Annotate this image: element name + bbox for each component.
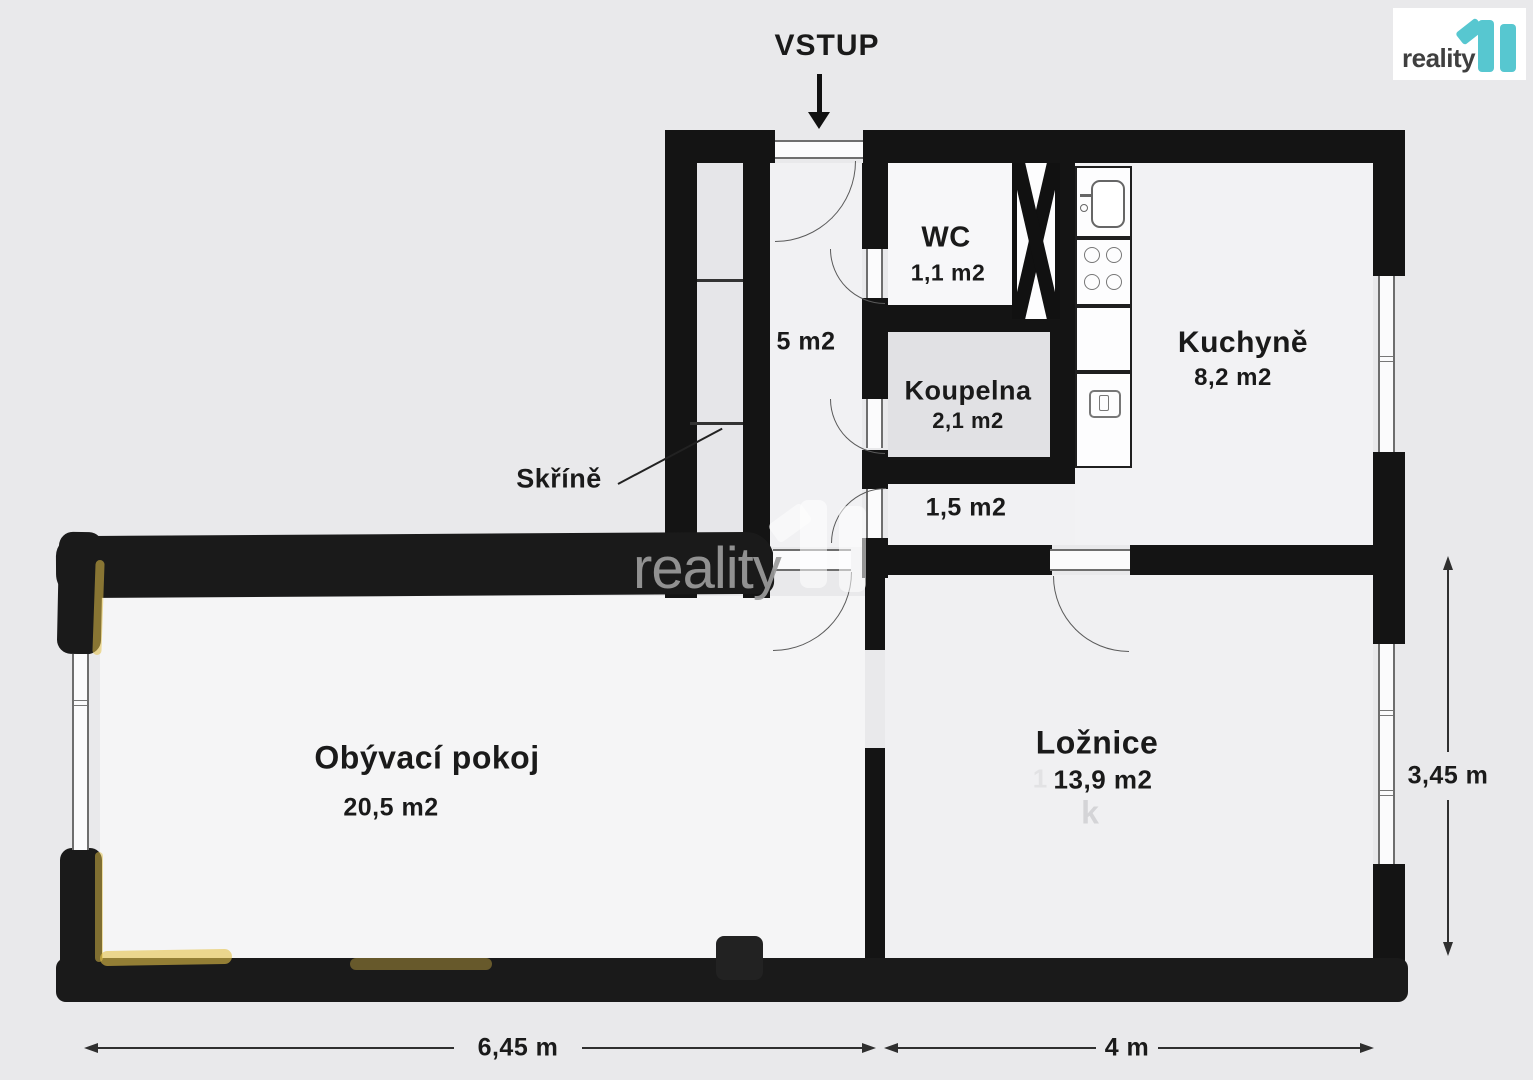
closet-divider [697,279,743,282]
right-wall-seg [1373,130,1405,276]
burner-icon [1106,247,1122,263]
kitchen-area: 8,2 m2 [1194,364,1272,392]
tap-icon [1080,204,1088,212]
bedroom-area: 13,9 m2 [1054,765,1153,796]
bathroom-bottom-wall [862,457,1075,484]
dim-line [1447,800,1449,944]
highlight-mark [350,958,492,970]
logo-brand-text: reality [1402,45,1475,71]
living-bedroom-wall-top [865,545,885,650]
logo-11-bar [1478,20,1494,72]
logo-11-bar [1500,24,1516,72]
shaft [1012,163,1060,319]
right-wall-seg [1373,864,1405,966]
appliance-icon [1099,395,1109,411]
dim-arrow-down [1443,942,1453,956]
dim-line [896,1047,1096,1049]
dim-arrow-right [1360,1043,1374,1053]
bedroom-top-wall [885,545,1052,575]
window-mullion [74,700,87,706]
hallway-area: 5 m2 [777,328,836,357]
living-room-name: Obývací pokoj [314,740,539,777]
dim-line [1158,1047,1362,1049]
bathroom-name: Koupelna [904,376,1031,407]
kitchen-bottom-wall [1130,545,1405,575]
living-room-floor [100,596,865,962]
watermark-text: reality [633,540,781,598]
closets-label: Skříně [516,464,602,495]
highlight-mark [95,852,103,962]
wc-area: 1,1 m2 [911,260,986,287]
watermark-ghost-k: k [1081,795,1099,832]
closet-divider [690,422,743,425]
dim-bottom-left: 6,45 m [478,1034,559,1063]
burner-icon [1084,274,1100,290]
highlight-mark [100,949,232,966]
watermark-11-bar [800,500,827,588]
wc-name: WC [921,222,970,255]
entrance-label: VSTUP [774,29,879,63]
burner-icon [1084,247,1100,263]
living-room-area: 20,5 m2 [343,794,438,823]
tap-icon [1080,194,1091,197]
entrance-arrow-head [808,112,830,129]
watermark-11-bar [839,506,866,592]
dim-line [96,1047,454,1049]
corridor-area: 1,5 m2 [926,494,1007,523]
dim-right: 3,45 m [1408,762,1489,791]
shaft-kitchen-wall [1060,163,1075,484]
kitchen-counter-unit [1075,306,1132,372]
living-room-window [72,654,89,850]
logo-box: reality [1393,8,1526,80]
watermark-ghost-one: 1 [1033,764,1047,795]
closet-interior [697,163,743,545]
bathroom-area: 2,1 m2 [932,408,1004,434]
kitchen-sink-unit [1075,166,1132,238]
dim-arrow-right [862,1043,876,1053]
entrance-threshold [775,140,863,159]
upper-left-wall [665,130,697,598]
living-bedroom-wall-bottom [865,748,885,964]
kitchen-window [1378,276,1395,452]
window-mullion [1380,356,1393,362]
bedroom-door-threshold [1050,549,1130,571]
bedroom-window [1378,644,1395,864]
burner-icon [1106,274,1122,290]
sink-icon [1091,180,1125,228]
kitchen-name: Kuchyně [1178,326,1308,360]
window-mullion [1380,790,1393,796]
dim-line [582,1047,862,1049]
dim-line [1447,568,1449,752]
window-mullion [1380,710,1393,716]
right-wall-seg [1373,452,1405,644]
entrance-arrow-line [817,74,822,116]
kitchen-stove-unit [1075,238,1132,306]
hall-right-wall-seg [862,163,888,249]
kitchen-appliance-unit [1075,372,1132,468]
bedroom-name: Ložnice [1036,725,1159,762]
top-wall-right [863,130,1405,163]
column-stub [716,936,763,980]
dim-bottom-right: 4 m [1105,1034,1150,1063]
